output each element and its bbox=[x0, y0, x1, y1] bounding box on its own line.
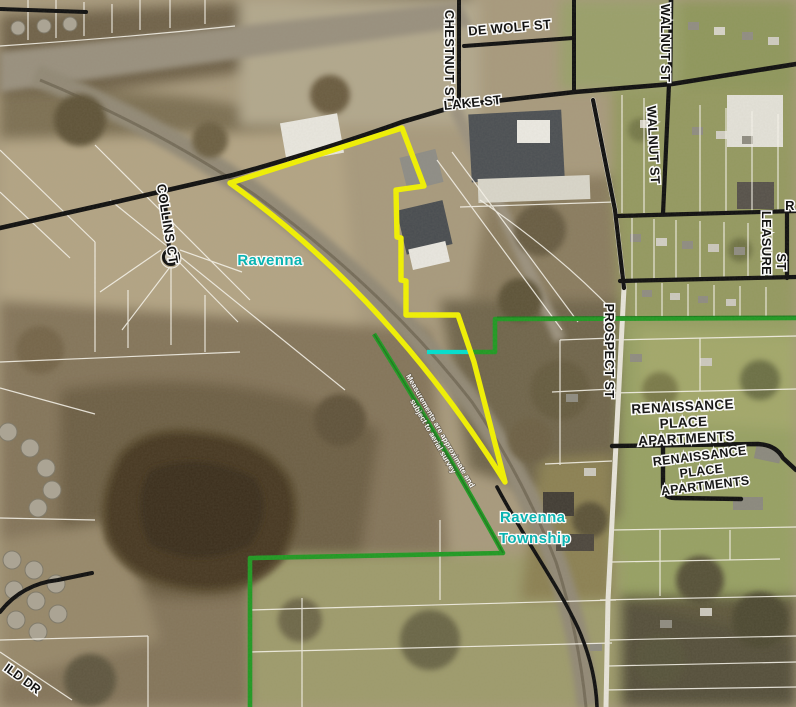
aerial-basemap bbox=[0, 0, 796, 707]
street-label-leasure-st-suffix: ST bbox=[774, 253, 789, 270]
street-label-prospect-st: PROSPECT ST bbox=[602, 303, 617, 398]
township-label-line1: Ravenna bbox=[500, 509, 566, 526]
street-label-partial-r: R bbox=[785, 198, 795, 213]
street-label-leasure: LEASURE bbox=[759, 211, 774, 275]
street-label-chestnut-st: CHESTNUT ST bbox=[442, 10, 457, 104]
municipality-label-ravenna: Ravenna bbox=[237, 252, 303, 269]
township-label-line2: Township bbox=[499, 530, 571, 547]
aerial-map: DE WOLF ST CHESTNUT ST LAKE ST WALNUT ST… bbox=[0, 0, 796, 707]
gis-map-canvas[interactable]: DE WOLF ST CHESTNUT ST LAKE ST WALNUT ST… bbox=[0, 0, 796, 707]
street-label-walnut-st-north: WALNUT ST bbox=[658, 4, 673, 83]
